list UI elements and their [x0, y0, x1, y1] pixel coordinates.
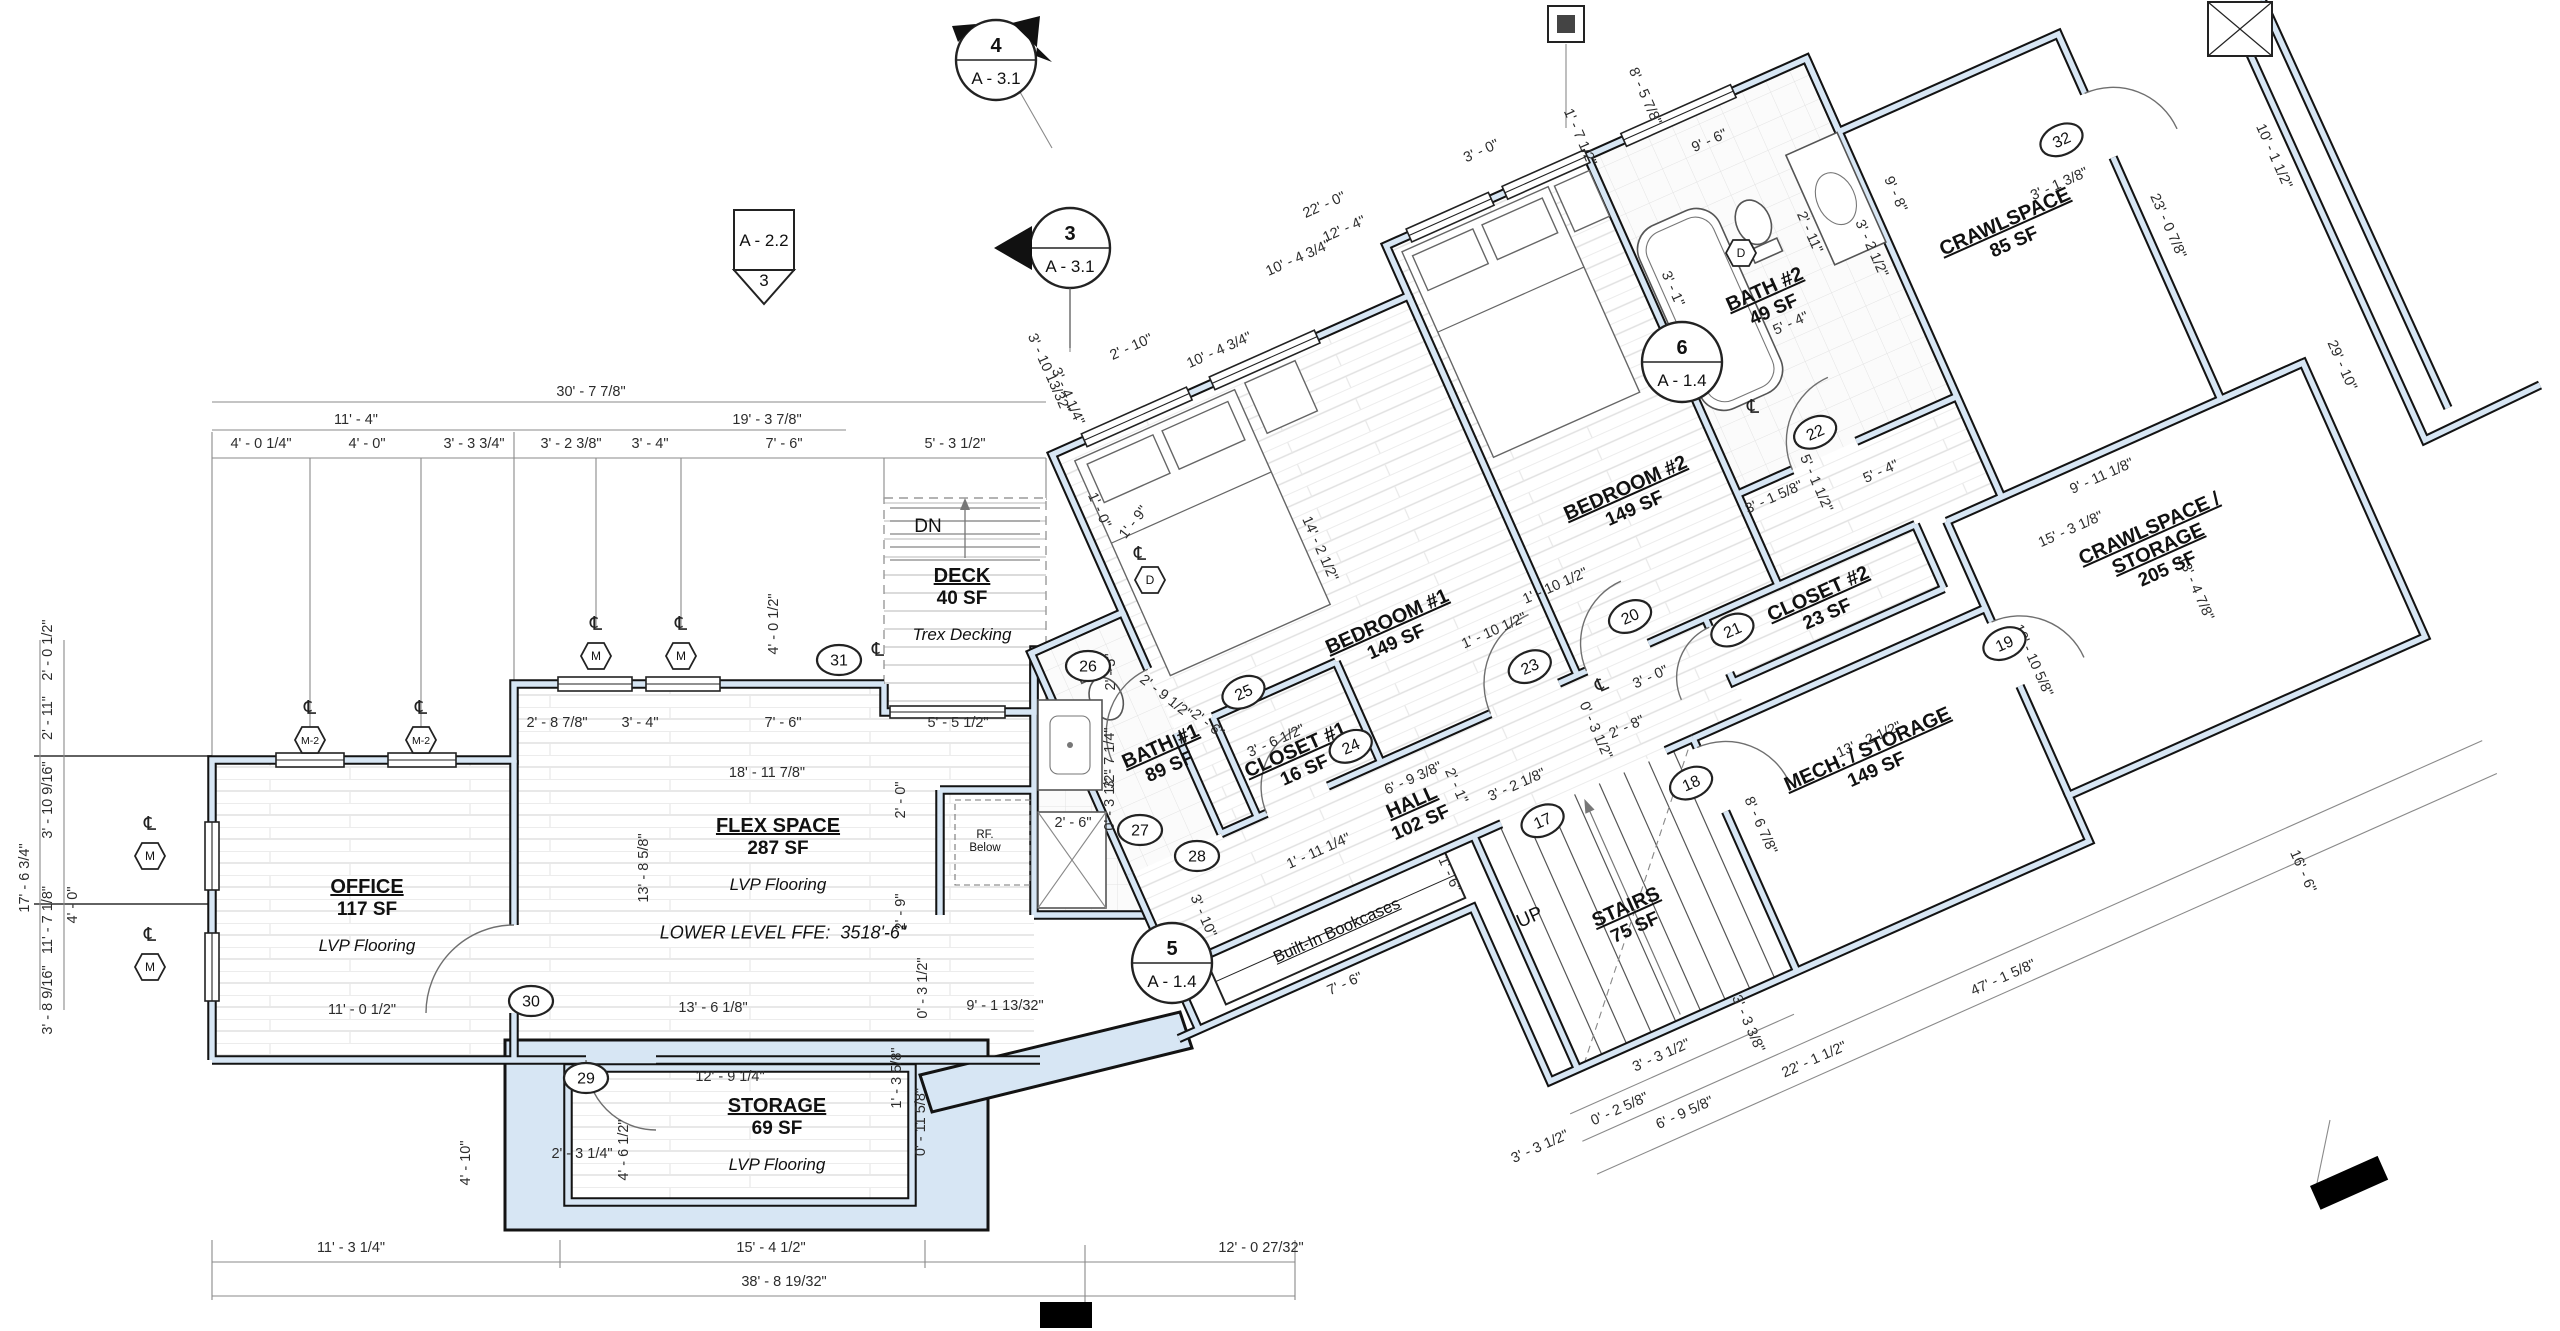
dimension-label: 12' - 9 1/4"	[695, 1069, 764, 1085]
detail-circle-marker-A-1.4: 5A - 1.4	[1132, 923, 1212, 1003]
dimension-label: 4' - 0"	[65, 887, 81, 924]
elev-num-text: 3	[759, 271, 768, 290]
marker-number: 3	[1064, 223, 1075, 245]
dimension-label: 3' - 3 3/4"	[443, 436, 504, 452]
elev-square-marker-A-2.2: A - 2.23	[734, 210, 794, 304]
dimension-label: 0' - 3 1/2"	[915, 957, 931, 1018]
room-label-stairs: STAIRS75 SF	[1589, 883, 1673, 952]
dimension-label: 9' - 1 13/32"	[966, 998, 1043, 1014]
dimension-label: 2' - 0 1/2"	[40, 619, 56, 680]
dimension-label: 4' - 10"	[458, 1141, 474, 1186]
dimension-label: 6' - 9 5/8"	[1654, 1093, 1716, 1132]
centerline-icon: ℄	[1133, 544, 1147, 565]
centerline-icon: ℄	[143, 814, 157, 835]
keynote-bubble-27: 27	[1118, 815, 1162, 845]
hex-text: M-2	[412, 735, 430, 747]
floor-plan-canvas: 10' - 4 3/4"14' - 2 1/2"1' - 0"1' - 10 1…	[0, 0, 2560, 1331]
centerline-icon: ℄	[674, 614, 688, 635]
dimension-label: 29' - 10"	[2324, 338, 2360, 393]
dimension-label: 11' - 4"	[334, 412, 378, 428]
room-label-line: 69 SF	[752, 1118, 803, 1139]
dimension-label: 12' - 0 27/32"	[1218, 1240, 1303, 1256]
marker-sheet: A - 3.1	[971, 69, 1020, 88]
dimension-label: 4' - 6 1/2"	[616, 1119, 632, 1180]
dimension-label: 19' - 3 7/8"	[732, 412, 801, 428]
rotated-wing: 10' - 4 3/4"14' - 2 1/2"1' - 0"1' - 10 1…	[916, 0, 2497, 1307]
bubble-number: 26	[1079, 659, 1097, 676]
dimension-label: 3' - 4"	[632, 436, 669, 452]
bubble-number: 31	[830, 653, 848, 670]
dimension-label: 3' - 3 1/2"	[1509, 1127, 1571, 1166]
dimension-label: 3' - 4"	[622, 715, 659, 731]
hex-text: D	[1737, 246, 1746, 260]
type-hex-marker-M-2: M-2	[295, 727, 325, 753]
keynote-bubble-29: 29	[564, 1063, 608, 1093]
hex-text: M	[145, 849, 155, 863]
room-label-crawlspace-storage: CRAWLSPACE /STORAGE205 SF	[2075, 488, 2241, 610]
dimension-label: 2' - 10"	[1108, 331, 1156, 364]
marker-number: 6	[1676, 337, 1687, 359]
floor-plan-page: { "drawing": { "type": "architectural-fl…	[0, 0, 2560, 1331]
centerline-icon: ℄	[143, 925, 157, 946]
bubble-number: 29	[577, 1071, 595, 1088]
dimension-label: 5' - 5 1/2"	[927, 715, 988, 731]
centerline-icon: ℄	[414, 698, 428, 719]
dimension-label: 13' - 8 5/8"	[636, 833, 652, 902]
room-label-crawlspace: CRAWLSPACE85 SF	[1936, 183, 2082, 280]
dimension-label: 17' - 6 3/4"	[17, 843, 33, 912]
type-hex-marker-M: M	[666, 643, 696, 669]
dimension-label: 3' - 0"	[1461, 137, 1501, 167]
dimension-label: 1' - 3 5/8"	[889, 1047, 905, 1108]
room-label-mech-storage: MECH. / STORAGE149 SF	[1781, 703, 1963, 816]
keynote-bubble-31: 31	[817, 645, 861, 675]
type-hex-marker-D: D	[1135, 567, 1165, 593]
ffe-note-label: LOWER LEVEL FFE: 3518'-6"	[660, 923, 907, 944]
chimney-symbol	[1548, 6, 1584, 42]
dimension-label: 7' - 6"	[765, 715, 802, 731]
dimension-label: 3' - 3 3/8"	[1728, 993, 1767, 1055]
dimension-label: 15' - 4 1/2"	[736, 1240, 805, 1256]
bubble-number: 27	[1131, 823, 1149, 840]
dimension-label: 9' - 8"	[1880, 174, 1910, 214]
dimension-label: 13' - 6 1/8"	[678, 1000, 747, 1016]
room-label-line: Trex Decking	[913, 625, 1012, 644]
type-hex-marker-D: D	[1726, 240, 1756, 266]
room-label-line: LVP Flooring	[729, 1155, 826, 1174]
room-label-line: FLEX SPACE	[716, 815, 840, 837]
dimension-label: 18' - 11 7/8"	[729, 765, 805, 781]
marker-sheet: A - 1.4	[1147, 972, 1196, 991]
dimension-label: 2' - 3 1/4"	[551, 1146, 612, 1162]
room-label-line: 117 SF	[337, 899, 397, 920]
hex-text: D	[1146, 573, 1155, 587]
centerline-icon: ℄	[1746, 397, 1760, 418]
room-label-line: LVP Flooring	[730, 875, 827, 894]
dimension-label: 4' - 0 1/2"	[766, 593, 782, 654]
bubble-number: 28	[1188, 849, 1206, 866]
marker-number: 5	[1166, 938, 1177, 960]
dimension-label: 38' - 8 19/32"	[741, 1274, 826, 1290]
section-arrow	[994, 226, 1032, 270]
dimension-label: 3' - 2 3/8"	[540, 436, 601, 452]
detail-circle-marker-A-1.4: 6A - 1.4	[1642, 322, 1722, 402]
dimension-label: 8' - 5 7/8"	[1625, 65, 1664, 127]
type-hex-marker-M: M	[135, 954, 165, 980]
dimension-label: 22' - 0"	[1301, 189, 1349, 222]
dimension-label: 4' - 0 1/4"	[230, 436, 291, 452]
room-label-line: LVP Flooring	[319, 936, 416, 955]
section-circle-marker-A-3.1: 3A - 3.1	[994, 208, 1110, 348]
keynote-bubble-30: 30	[509, 986, 553, 1016]
type-hex-marker-M: M	[581, 643, 611, 669]
dimension-label: 10' - 4 3/4"	[1264, 237, 1334, 280]
keynote-bubble-32: 32	[2035, 117, 2087, 162]
rf-below-label: RF.Below	[969, 829, 1000, 855]
dimension-label: 2' - 8 7/8"	[526, 715, 587, 731]
elev-sheet-text: A - 2.2	[739, 231, 788, 250]
dimension-label: 2' - 6"	[1055, 815, 1092, 831]
dimension-label: 3' - 8 9/16"	[40, 965, 56, 1034]
dimension-label: 22' - 1 1/2"	[1779, 1039, 1849, 1082]
centerline-icon: ℄	[871, 640, 885, 661]
bubble-number: 30	[522, 994, 540, 1011]
dimension-label: 11' - 0 1/2"	[328, 1002, 396, 1018]
room-label-line: 40 SF	[937, 588, 988, 609]
hex-text: M	[676, 649, 686, 663]
dimension-label: 3' - 10 9/16"	[40, 761, 56, 838]
dimension-label: 5' - 3 1/2"	[924, 436, 985, 452]
dimension-label: 7' - 6"	[766, 436, 803, 452]
dimension-label: 4' - 0"	[349, 436, 386, 452]
keynote-bubble-18: 18	[1665, 760, 1717, 805]
dimension-label: 0' - 2 5/8"	[1588, 1090, 1650, 1129]
room-label-line: 287 SF	[747, 838, 808, 859]
dimension-label: 2' - 0"	[893, 782, 909, 819]
skylight-symbol	[2208, 2, 2272, 56]
marker-sheet: A - 1.4	[1657, 371, 1706, 390]
hex-text: M	[591, 649, 601, 663]
hex-text: M-2	[301, 735, 319, 747]
keynote-bubble-28: 28	[1175, 841, 1219, 871]
marker-sheet: A - 3.1	[1045, 257, 1094, 276]
room-label-line: STORAGE	[728, 1095, 827, 1117]
dimension-label: 11' - 7 1/8"	[40, 886, 56, 954]
section-circle-marker-A-3.1: 4A - 3.1	[952, 16, 1052, 100]
dimension-label: 0' - 3 1/2"	[1102, 769, 1118, 830]
dimension-label: 30' - 7 7/8"	[556, 384, 625, 400]
centerline-icon: ℄	[589, 614, 603, 635]
type-hex-marker-M-2: M-2	[406, 727, 436, 753]
dimension-label: 0' - 11 5/8"	[913, 1088, 929, 1156]
hex-text: M	[145, 960, 155, 974]
room-label-line: DECK	[934, 565, 991, 587]
dimension-label: 11' - 3 1/4"	[317, 1240, 385, 1256]
marker-number: 4	[990, 35, 1002, 57]
keynote-bubble-26: 26	[1066, 651, 1110, 681]
type-hex-marker-M: M	[135, 843, 165, 869]
dimension-label: 2' - 11"	[40, 696, 56, 740]
centerline-icon: ℄	[303, 698, 317, 719]
deck-dn-label: DN	[914, 516, 941, 538]
room-label-line: OFFICE	[330, 876, 403, 898]
